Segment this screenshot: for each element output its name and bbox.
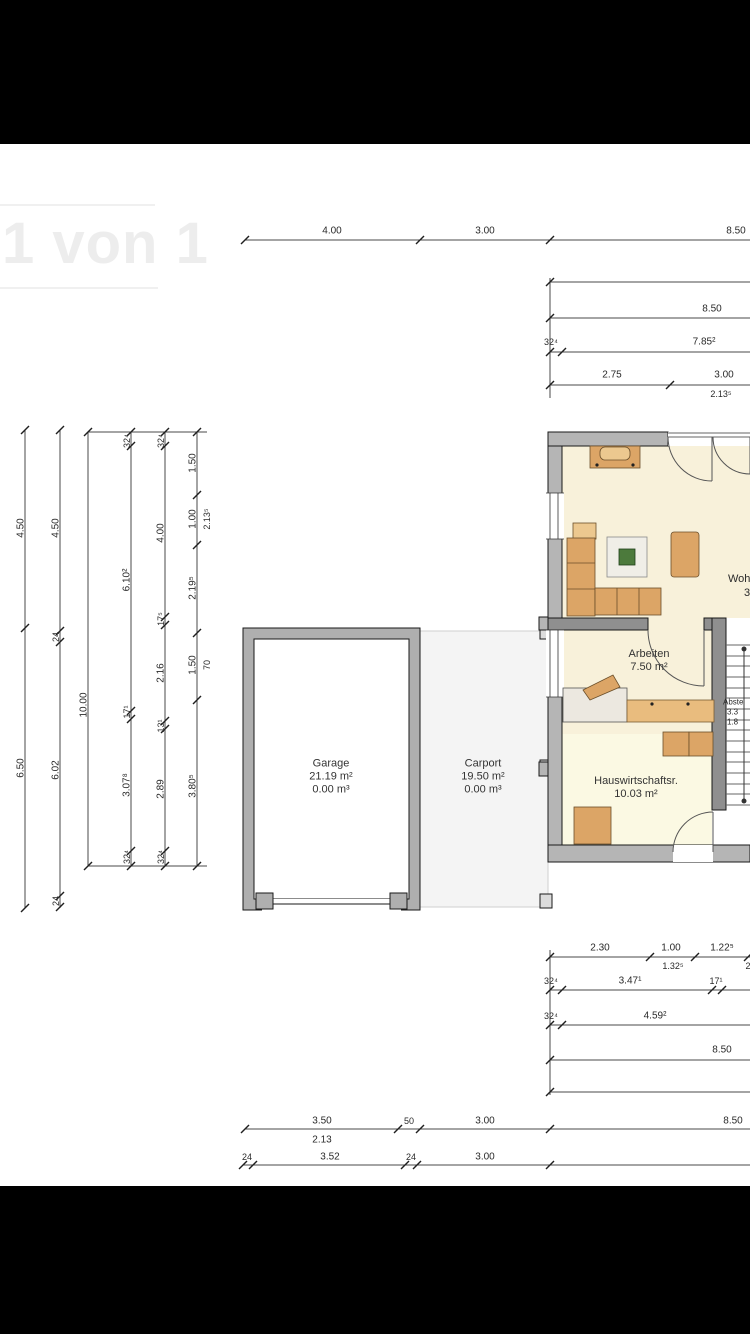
phone-screen: 1 von 1 (0, 0, 750, 1334)
house (539, 432, 750, 862)
counter (627, 700, 714, 722)
letterbox-bottom (0, 1186, 750, 1334)
watermark-lines (0, 205, 158, 288)
chair (600, 447, 630, 460)
letterbox-top (0, 0, 750, 144)
carport-area (420, 626, 552, 908)
sofa-horizontal (595, 588, 661, 615)
storage-box (574, 807, 611, 844)
plant (619, 549, 635, 565)
floorplan-drawing (0, 144, 750, 1186)
floorplan-viewer[interactable]: 1 von 1 (0, 144, 750, 1186)
sofa-cushion (573, 523, 596, 539)
cabinet (689, 732, 713, 756)
cabinet (663, 732, 689, 756)
stair-hall-floor (726, 618, 750, 845)
armchair (671, 532, 699, 577)
sofa-vertical (567, 538, 595, 616)
garage-walls (243, 628, 420, 911)
